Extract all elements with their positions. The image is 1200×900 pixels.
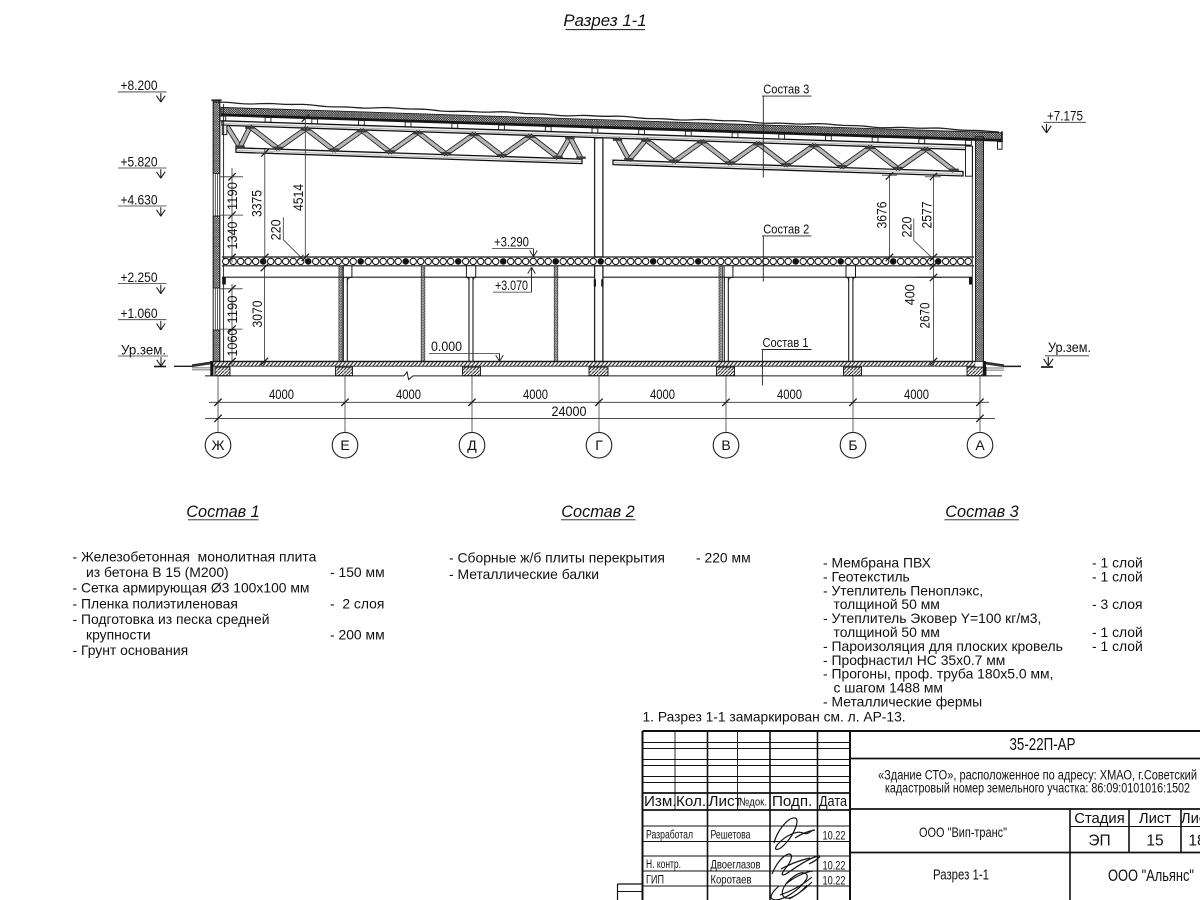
svg-text:Состав 2: Состав 2: [763, 221, 809, 236]
svg-text:4000: 4000: [777, 387, 802, 402]
svg-text:Ж: Ж: [212, 437, 225, 453]
svg-text:24000: 24000: [552, 404, 587, 419]
svg-text:+2.250: +2.250: [121, 270, 158, 285]
svg-text:Состав 1: Состав 1: [763, 335, 809, 350]
svg-text:ГИП: ГИП: [646, 873, 664, 887]
svg-text:400: 400: [903, 284, 918, 305]
svg-text:Состав 1: Состав 1: [186, 503, 259, 521]
svg-text:Разработал: Разработал: [646, 828, 693, 842]
svg-text:+4.630: +4.630: [121, 192, 158, 207]
svg-text:Ур.зем.: Ур.зем.: [1048, 340, 1091, 355]
svg-text:Лист: Лист: [1181, 811, 1200, 827]
svg-text:Изм.: Изм.: [644, 793, 677, 810]
svg-text:А: А: [975, 437, 985, 453]
svg-text:- 220 мм: - 220 мм: [696, 550, 751, 566]
svg-text:220: 220: [900, 217, 915, 238]
svg-text:Состав 2: Состав 2: [561, 503, 634, 521]
svg-text:Разрез 1-1: Разрез 1-1: [933, 868, 989, 884]
svg-text:- 3 слоя: - 3 слоя: [1092, 596, 1143, 612]
svg-text:Д: Д: [467, 437, 477, 453]
svg-text:3676: 3676: [875, 202, 890, 229]
svg-text:- Пленка полиэтиленовая: - Пленка полиэтиленовая: [73, 595, 238, 611]
svg-text:- Металлические фермы: - Металлические фермы: [823, 694, 982, 710]
svg-text:2670: 2670: [918, 303, 933, 329]
svg-text:10.22: 10.22: [823, 829, 846, 843]
svg-text:Е: Е: [340, 437, 349, 453]
svg-text:Подп.: Подп.: [772, 793, 812, 810]
svg-text:Ур.зем.: Ур.зем.: [121, 342, 166, 357]
svg-text:Решетова: Решетова: [711, 828, 751, 842]
svg-text:+1.060: +1.060: [121, 306, 158, 321]
svg-text:- Подготовка из песка средней: - Подготовка из песка средней: [73, 611, 270, 627]
svg-text:4000: 4000: [269, 387, 294, 402]
svg-text:1. Разрез 1-1 замаркирован см.: 1. Разрез 1-1 замаркирован см. л. АР-13.: [643, 710, 906, 725]
svg-text:+7.175: +7.175: [1047, 108, 1083, 123]
svg-text:Н. контр.: Н. контр.: [646, 857, 681, 871]
svg-text:10.22: 10.22: [823, 859, 846, 873]
svg-text:Состав 3: Состав 3: [763, 81, 809, 96]
svg-text:Лист: Лист: [1139, 811, 1171, 827]
svg-text:Стадия: Стадия: [1074, 811, 1124, 827]
svg-text:Разрез 1-1: Разрез 1-1: [563, 11, 646, 30]
svg-text:Г: Г: [595, 437, 603, 453]
svg-text:220: 220: [268, 219, 283, 240]
svg-text:крупности: крупности: [86, 627, 151, 643]
svg-text:+3.290: +3.290: [494, 234, 529, 249]
svg-text:Коротаев: Коротаев: [711, 873, 752, 887]
svg-text:4000: 4000: [650, 387, 675, 402]
svg-text:0.000: 0.000: [431, 339, 462, 354]
svg-text:+8.200: +8.200: [121, 78, 158, 93]
svg-text:- 1 слой: - 1 слой: [1092, 638, 1143, 654]
svg-text:18: 18: [1188, 833, 1200, 850]
svg-text:1060: 1060: [225, 329, 240, 357]
svg-text:4000: 4000: [523, 387, 548, 402]
svg-text:- Железобетонная монолитная п: - Железобетонная монолитная плита: [73, 549, 317, 565]
svg-text:35-22П-АР: 35-22П-АР: [1010, 734, 1076, 754]
svg-text:4514: 4514: [291, 184, 306, 211]
svg-text:Б: Б: [848, 437, 857, 453]
svg-text:Двоеглазов: Двоеглазов: [711, 858, 761, 872]
svg-text:- 2 слоя: - 2 слоя: [330, 595, 384, 611]
svg-text:4000: 4000: [396, 387, 421, 402]
svg-text:15: 15: [1146, 833, 1163, 850]
svg-text:1190: 1190: [225, 296, 240, 324]
svg-text:- Сетка армирующая Ø3 100х100: - Сетка армирующая Ø3 100х100 мм: [73, 580, 310, 596]
svg-text:3375: 3375: [249, 190, 264, 217]
svg-text:- 200 мм: - 200 мм: [330, 627, 385, 643]
svg-text:из бетона В 15 (М200): из бетона В 15 (М200): [86, 564, 229, 580]
svg-text:Состав 3: Состав 3: [945, 503, 1018, 521]
svg-text:- Металлические балки: - Металлические балки: [449, 566, 599, 582]
svg-text:- 1 слой: - 1 слой: [1092, 568, 1143, 584]
svg-text:4000: 4000: [904, 387, 929, 402]
svg-text:- 150 мм: - 150 мм: [330, 564, 385, 580]
svg-text:+3.070: +3.070: [495, 278, 528, 293]
svg-text:Кол.: Кол.: [676, 793, 706, 810]
svg-text:кадастровый номер земельного у: кадастровый номер земельного участка: 86…: [885, 780, 1190, 795]
svg-text:- Сборные ж/б плиты перекрытия: - Сборные ж/б плиты перекрытия: [449, 550, 665, 566]
svg-text:В: В: [721, 437, 730, 453]
svg-text:3070: 3070: [250, 301, 265, 328]
svg-text:ЭП: ЭП: [1088, 833, 1110, 850]
svg-text:+5.820: +5.820: [121, 154, 158, 169]
svg-text:1340: 1340: [225, 222, 240, 250]
svg-text:1190: 1190: [225, 182, 240, 210]
svg-text:№док.: №док.: [739, 796, 767, 808]
svg-text:Лист: Лист: [709, 793, 742, 810]
svg-text:2577: 2577: [920, 202, 935, 229]
svg-text:ООО "Альянс": ООО "Альянс": [1108, 867, 1194, 885]
svg-text:10.22: 10.22: [823, 874, 846, 888]
svg-text:Дата: Дата: [819, 793, 847, 810]
svg-text:ООО "Вип-транс": ООО "Вип-транс": [919, 825, 1007, 840]
svg-text:- Грунт основания: - Грунт основания: [73, 642, 189, 658]
